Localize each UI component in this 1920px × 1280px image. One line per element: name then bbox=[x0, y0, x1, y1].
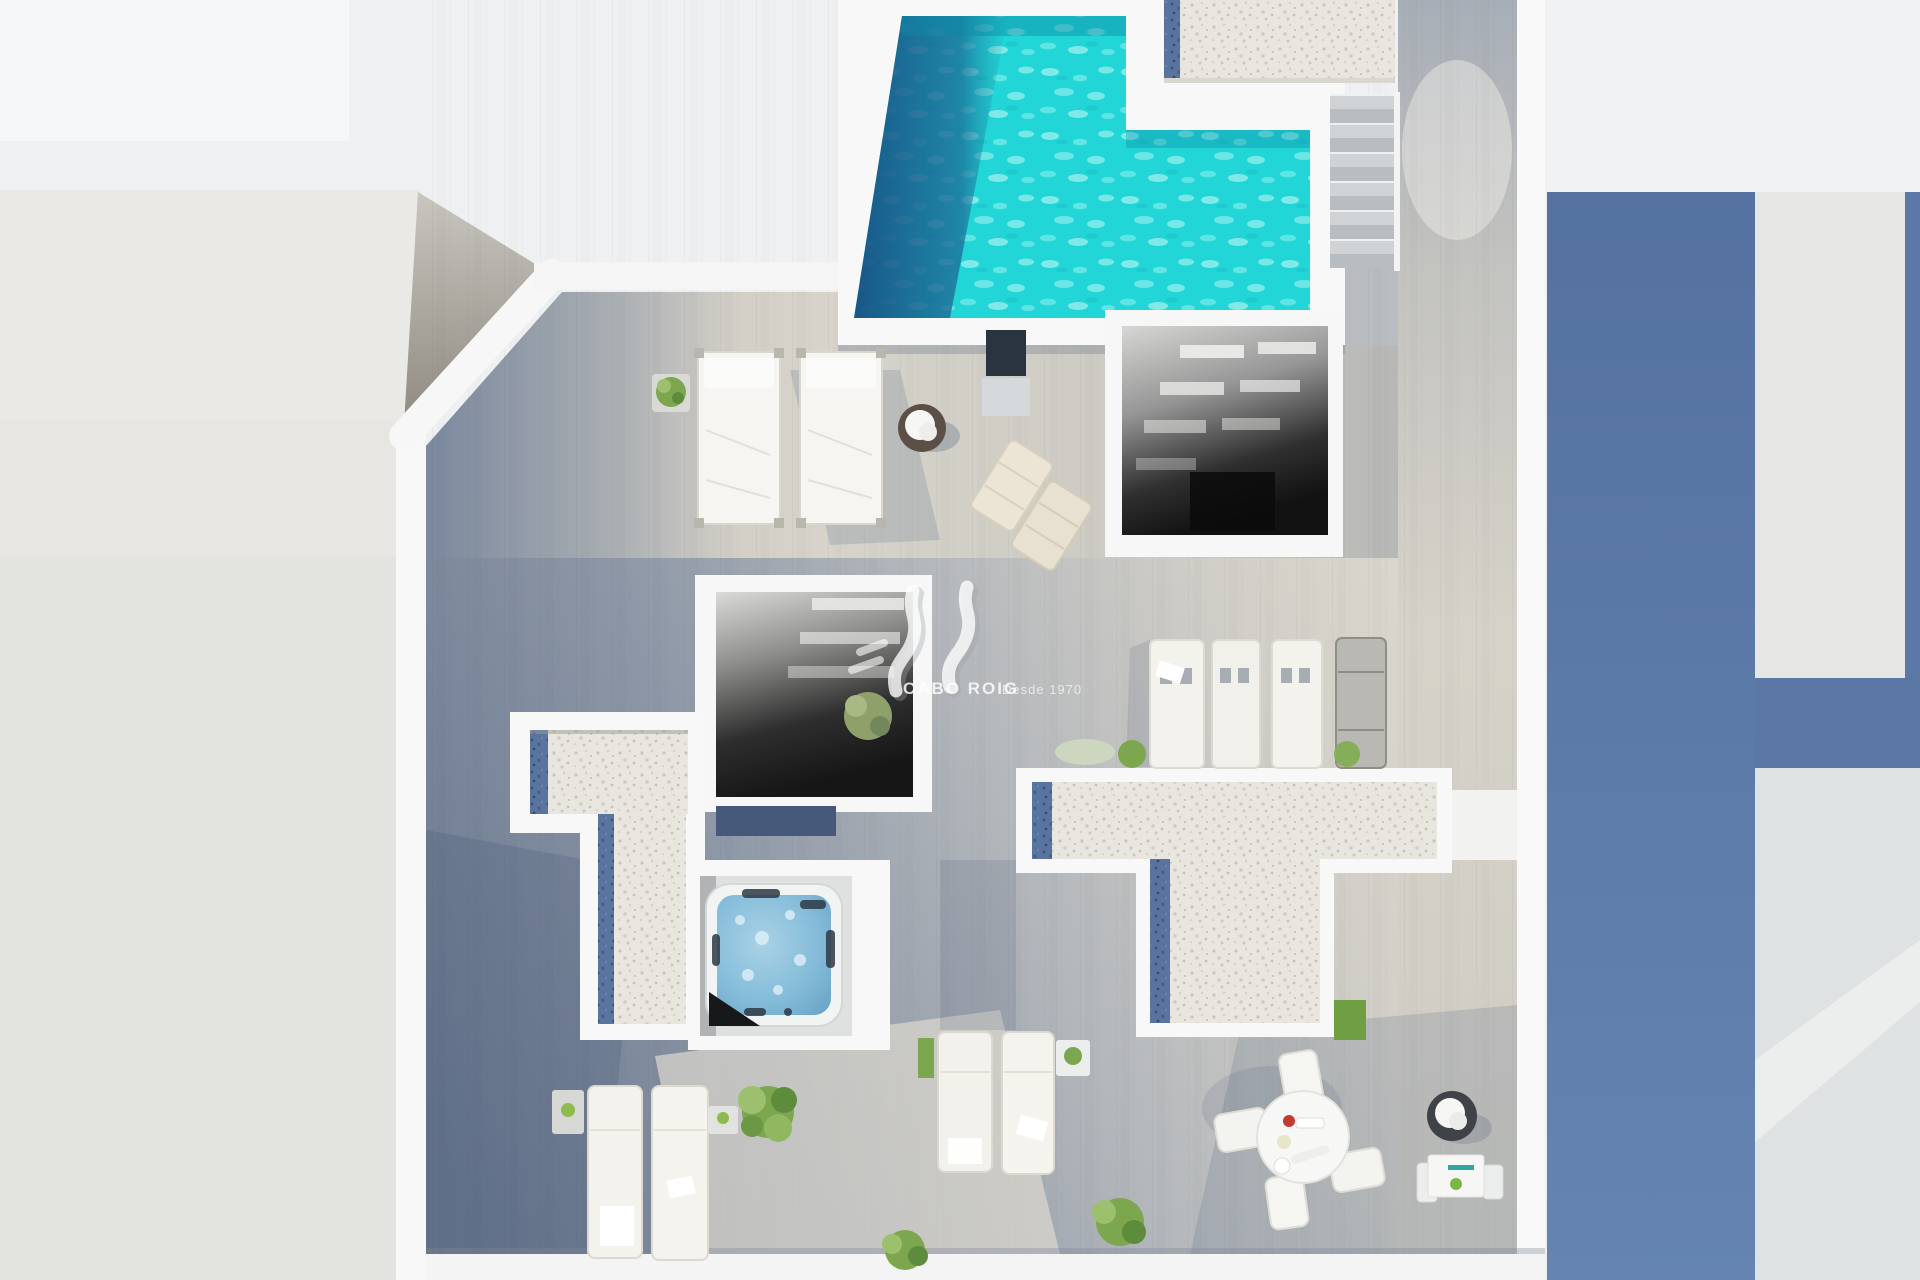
skylight-strip-left-2 bbox=[598, 814, 614, 1024]
skylight-strip-center-2 bbox=[1150, 859, 1170, 1023]
watermark-tagline: Desde 1970 bbox=[1002, 682, 1082, 697]
neighbor-area-right bbox=[1545, 0, 1920, 1280]
green-apple bbox=[1450, 1178, 1462, 1190]
planter-edge bbox=[918, 1038, 934, 1078]
skylight-strip-pool bbox=[1164, 0, 1180, 78]
lounger bbox=[1002, 1032, 1054, 1174]
jacuzzi-water bbox=[717, 895, 831, 1015]
render-canvas: CABO ROIG Desde 1970 bbox=[0, 0, 1920, 1280]
gravel-roof-strip bbox=[1164, 0, 1395, 78]
lounger bbox=[1212, 640, 1260, 768]
skylight-strip-center-1 bbox=[1032, 782, 1052, 859]
cast-shadow-roofT bbox=[940, 860, 1016, 1030]
neighbor-roof-top-left bbox=[0, 0, 349, 141]
daybed-2 bbox=[796, 348, 886, 528]
parapet-left bbox=[396, 424, 426, 1280]
side-table bbox=[1056, 1040, 1090, 1076]
roof-access-stairs bbox=[1330, 92, 1400, 271]
daybed-1 bbox=[694, 348, 784, 528]
large-plant bbox=[738, 1086, 797, 1142]
side-table bbox=[552, 1090, 584, 1134]
neighbor-roof-bottom-left bbox=[0, 557, 398, 1280]
planter-top bbox=[652, 374, 690, 412]
rooftop-render: CABO ROIG Desde 1970 bbox=[0, 0, 1920, 1280]
parapet-right bbox=[1517, 0, 1545, 1280]
skylight-strip-left-1 bbox=[530, 730, 548, 814]
parapet-top bbox=[534, 262, 844, 290]
stairwell-opening-lower bbox=[695, 575, 932, 836]
grass-patch bbox=[1334, 1000, 1366, 1040]
teal-placemat bbox=[1448, 1165, 1474, 1170]
bistro-table bbox=[1428, 1155, 1484, 1197]
bush-small bbox=[1334, 741, 1360, 767]
dining-table bbox=[1257, 1091, 1349, 1183]
lounger bbox=[938, 1032, 992, 1172]
lounger bbox=[1272, 640, 1322, 768]
neighbor-shadow-right bbox=[1547, 192, 1755, 1280]
side-table bbox=[708, 1106, 738, 1134]
lounger bbox=[652, 1086, 708, 1260]
lower-balcony-void bbox=[716, 806, 836, 836]
neighbor-roof-top-right bbox=[1545, 0, 1920, 192]
neighbor-building-right-strip bbox=[1755, 192, 1905, 678]
pale-plant bbox=[1055, 739, 1115, 765]
jacuzzi bbox=[688, 860, 890, 1050]
red-tableware bbox=[1283, 1115, 1295, 1127]
lounger bbox=[588, 1086, 642, 1258]
lounger bbox=[1150, 640, 1204, 768]
bush-small bbox=[1118, 740, 1146, 768]
pool-shower-mat bbox=[986, 330, 1026, 376]
stairwell-opening-upper bbox=[1105, 310, 1343, 557]
